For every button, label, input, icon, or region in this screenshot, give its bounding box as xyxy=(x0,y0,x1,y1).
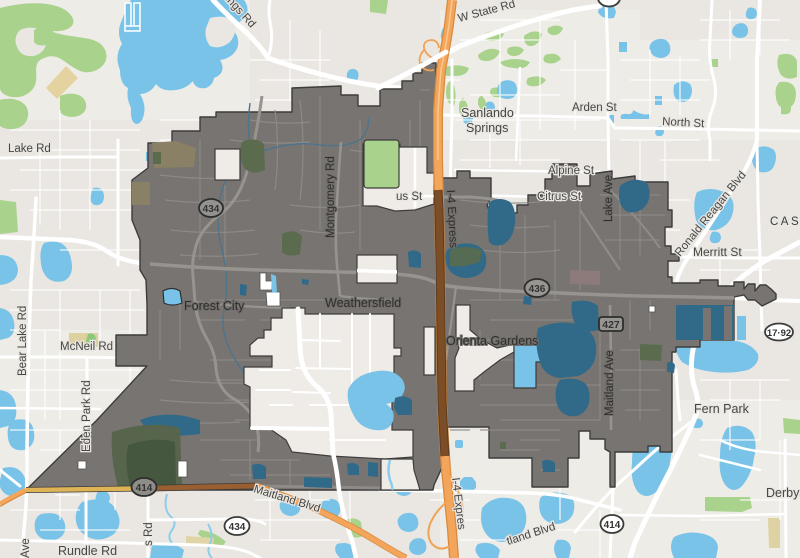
svg-text:us St: us St xyxy=(396,191,423,203)
svg-text:Derbysh: Derbysh xyxy=(766,486,800,500)
svg-text:Springs: Springs xyxy=(466,121,508,135)
svg-text:Arden St: Arden St xyxy=(572,102,618,114)
svg-text:McNeil Rd: McNeil Rd xyxy=(60,341,113,353)
svg-text:Citrus St: Citrus St xyxy=(537,191,582,203)
svg-text:Ave: Ave xyxy=(20,538,32,558)
svg-text:436: 436 xyxy=(529,284,546,295)
svg-text:Bear Lake Rd: Bear Lake Rd xyxy=(17,306,29,376)
svg-text:Weathersfield: Weathersfield xyxy=(325,296,401,310)
svg-text:Eden Park Rd: Eden Park Rd xyxy=(81,380,93,452)
svg-text:CASS: CASS xyxy=(770,216,800,228)
svg-text:17·92: 17·92 xyxy=(767,328,791,339)
svg-text:Forest City: Forest City xyxy=(184,299,245,313)
svg-text:Fern Park: Fern Park xyxy=(694,402,750,416)
svg-text:414: 414 xyxy=(604,520,621,531)
svg-text:414: 414 xyxy=(136,483,153,494)
svg-text:Alpine St: Alpine St xyxy=(548,165,595,177)
svg-text:Maitland Ave: Maitland Ave xyxy=(604,350,616,416)
svg-text:North St: North St xyxy=(662,116,706,130)
svg-text:Merritt St: Merritt St xyxy=(693,245,742,259)
svg-text:427: 427 xyxy=(602,319,620,331)
svg-text:s Rd: s Rd xyxy=(143,522,155,546)
svg-text:Sanlando: Sanlando xyxy=(461,106,514,120)
svg-text:Rundle Rd: Rundle Rd xyxy=(58,544,117,558)
svg-text:434: 434 xyxy=(203,204,220,215)
svg-text:Montgomery Rd: Montgomery Rd xyxy=(325,156,337,238)
svg-text:Orienta Gardens: Orienta Gardens xyxy=(446,334,538,348)
svg-text:434: 434 xyxy=(229,522,246,533)
svg-text:Lake Rd: Lake Rd xyxy=(8,143,51,155)
svg-text:Lake Ave: Lake Ave xyxy=(603,175,615,222)
